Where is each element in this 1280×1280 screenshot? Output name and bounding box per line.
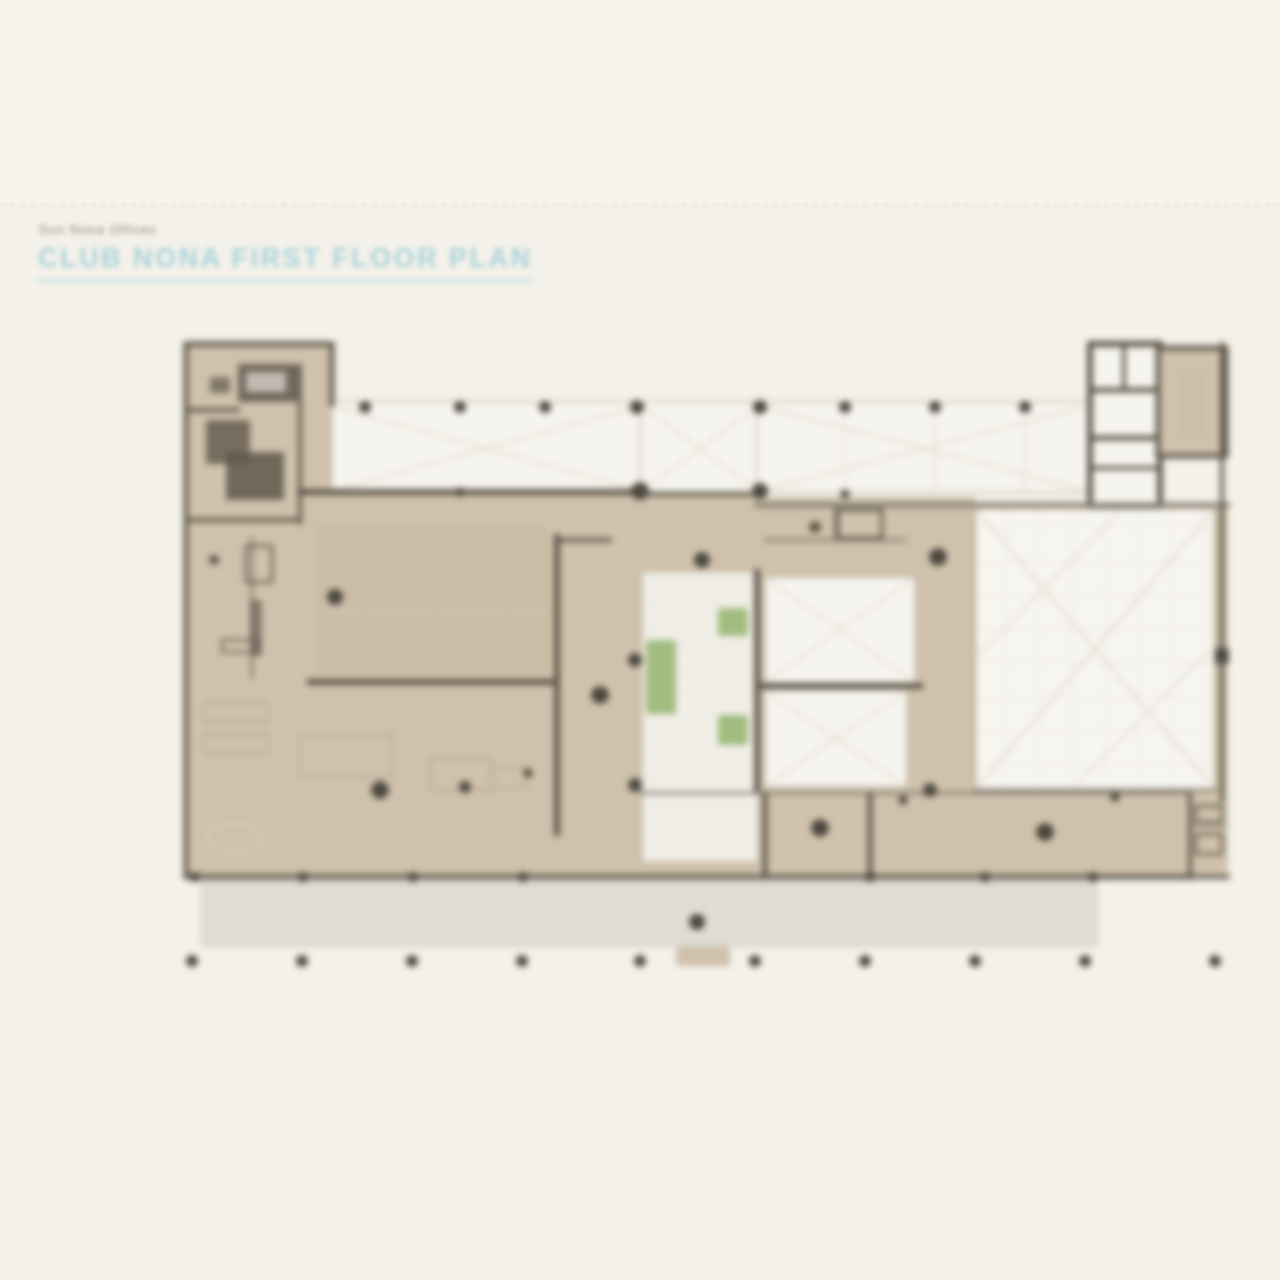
floor-plan-figure: [0, 0, 1280, 1280]
planter: [646, 640, 676, 714]
void-band: [332, 402, 1088, 492]
center-rooms: [765, 577, 915, 787]
floor-plan-svg: [0, 0, 1280, 1280]
multipurpose-hall: [975, 508, 1215, 790]
courtyard: [642, 572, 758, 862]
planter: [718, 715, 748, 745]
terrace: [200, 883, 1098, 947]
planter: [718, 608, 748, 636]
stair-core: [1090, 344, 1226, 506]
